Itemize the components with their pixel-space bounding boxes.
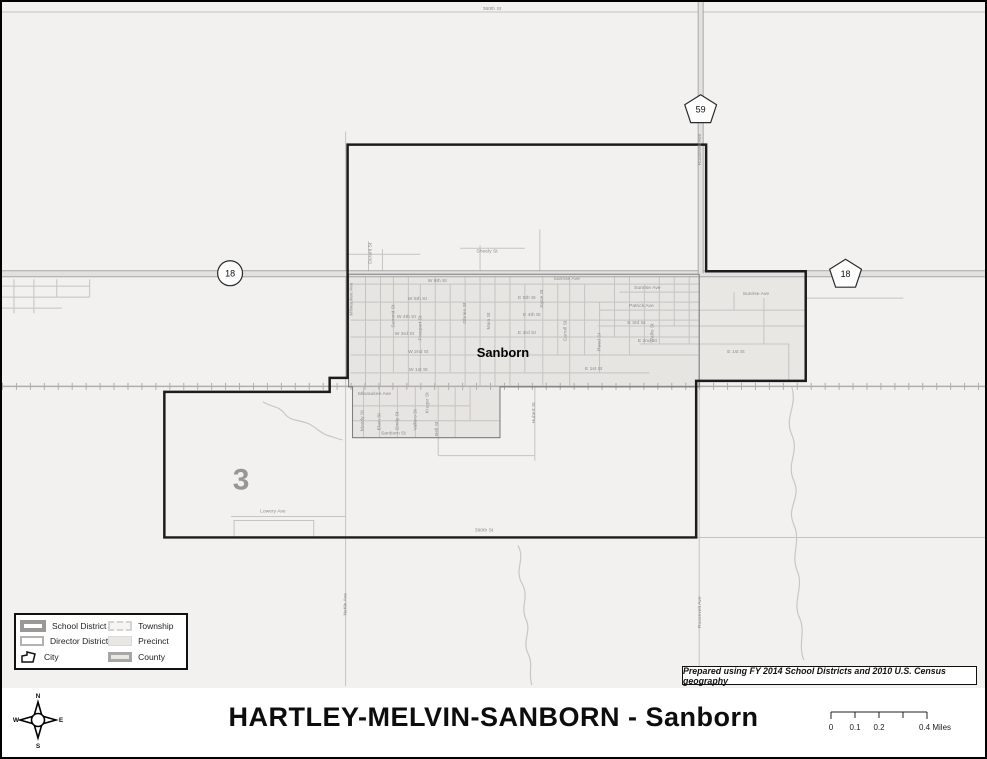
scale-bar: 0 0.1 0.2 0.4 Miles	[819, 702, 979, 738]
street-label: E 1st St	[727, 349, 745, 355]
director-district-symbol-icon	[20, 636, 44, 646]
scale-label-04-miles: 0.4 Miles	[919, 723, 951, 732]
street-label: Nettle Ave	[343, 593, 349, 616]
street-label: Kruger St	[424, 392, 430, 414]
street-label: Hubert St	[531, 402, 537, 424]
street-label: Patrick Ave	[629, 303, 654, 309]
street-label: Lowery Ave	[260, 509, 286, 515]
street-label: Emily St	[394, 411, 400, 430]
legend-label: School District	[52, 621, 106, 631]
legend-item-precinct: Precinct	[108, 636, 182, 646]
street-label: W 4th St	[397, 314, 417, 320]
legend: School District Director District City T…	[14, 613, 188, 670]
director-district-number: 3	[233, 464, 250, 497]
legend-item-city: City	[20, 651, 108, 664]
street-label: Sunrise Ave	[634, 285, 661, 291]
legend-label: Precinct	[138, 636, 169, 646]
street-label: W 2nd St	[408, 349, 429, 355]
street-label: Moody St	[360, 410, 366, 432]
scale-label-0: 0	[829, 723, 834, 732]
legend-item-school-district: School District	[20, 620, 108, 632]
legend-label: Township	[138, 621, 173, 631]
street-label: E 4th St	[523, 312, 541, 318]
street-label: 390th St	[475, 527, 494, 533]
street-label: W 5th St	[408, 296, 428, 302]
legend-label: County	[138, 652, 165, 662]
city-symbol-icon	[20, 651, 38, 664]
street-label: Wallis St	[649, 323, 655, 343]
street-label: Roosevelt Ave	[697, 133, 703, 165]
legend-item-director-district: Director District	[20, 636, 108, 646]
street-label: Carroll St	[563, 320, 569, 341]
street-label: Sheely St	[476, 248, 498, 254]
street-label: Sanborn St	[381, 431, 406, 437]
compass-n: N	[36, 693, 41, 700]
shield-number: 18	[225, 269, 235, 279]
street-label: Freeport St	[417, 315, 423, 340]
street-label: W 3rd St	[395, 331, 415, 337]
township-symbol-icon	[108, 621, 132, 631]
county-symbol-icon	[108, 652, 132, 662]
compass-s: S	[36, 743, 41, 750]
highway-shield-18-west: 18	[218, 261, 243, 286]
street-label: Milwaukee Ave	[358, 391, 391, 397]
map-page: 360th St390th StLowery AveMilwaukee AveS…	[0, 0, 987, 759]
street-label: 360th St	[483, 6, 502, 12]
precinct-symbol-icon	[108, 636, 132, 646]
street-label: Durant St	[367, 242, 373, 264]
legend-label: Director District	[50, 636, 108, 646]
city-label: Sanborn	[477, 345, 530, 360]
shield-number: 18	[841, 269, 851, 279]
street-label: Roosevelt Ave	[697, 596, 703, 628]
legend-item-county: County	[108, 652, 182, 662]
street-label: E 5th St	[518, 295, 536, 301]
scale-label-01: 0.1	[849, 723, 861, 732]
attribution-box: Prepared using FY 2014 School Districts …	[682, 666, 977, 685]
street-label: Summit St	[390, 304, 396, 328]
street-label: W 6th St	[428, 278, 448, 284]
street-label: Milwaukee Ave	[349, 282, 355, 315]
street-label: Sunrise Ave	[553, 276, 580, 282]
street-label: Bell St	[434, 421, 440, 436]
shield-number: 59	[696, 105, 706, 115]
street-label: Obrien St	[462, 302, 468, 324]
street-label: E 3rd St	[518, 330, 537, 336]
scale-label-02: 0.2	[873, 723, 885, 732]
street-label: E 1st St	[585, 366, 603, 372]
street-label: Joyce St	[539, 289, 545, 309]
legend-label: City	[44, 652, 59, 662]
street-label: Main St	[486, 312, 492, 329]
street-label: Sunrise Ave	[743, 291, 770, 297]
street-label: E 3rd St	[627, 320, 646, 326]
street-label: Vallero St	[412, 409, 418, 431]
street-label: Elain St	[376, 413, 382, 431]
legend-item-township: Township	[108, 621, 182, 631]
school-district-symbol-icon	[20, 620, 46, 632]
map-canvas: 360th St390th StLowery AveMilwaukee AveS…	[2, 2, 985, 688]
street-label: Reed St	[597, 332, 603, 351]
attribution-text: Prepared using FY 2014 School Districts …	[683, 666, 976, 686]
street-label: W 1st St	[409, 367, 428, 373]
